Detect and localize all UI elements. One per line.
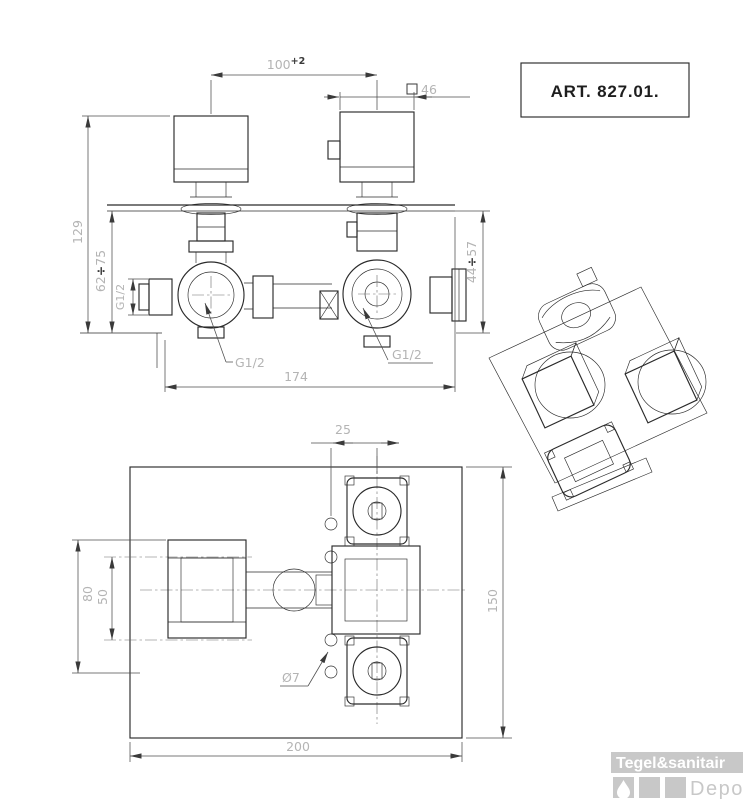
dim-200-label: 200 [286, 739, 310, 754]
perspective-view [489, 266, 707, 511]
dimension-recess-width-200: 200 [130, 739, 462, 762]
outlet-left-label: G1/2 [235, 355, 265, 370]
logo-brand-text: Tegel&sanitair [616, 755, 725, 772]
dim-46-label: 46 [421, 82, 437, 97]
logo-square-3 [665, 777, 686, 798]
union-nut [253, 276, 273, 318]
plan-top-port [345, 476, 409, 546]
iso-left-escutcheon [535, 352, 605, 418]
dim-62-75-label: 62÷75 [93, 250, 108, 292]
dia7-label: Ø7 [282, 670, 300, 685]
outlet-label-left-group: G1/2 [205, 303, 265, 370]
handle-side-knob [328, 141, 340, 159]
iso-right-handle [621, 338, 706, 423]
dim-44-57-label: 44÷57 [464, 241, 479, 283]
dimension-recess-height-150: 150 [466, 467, 512, 738]
dimension-depth-range-left: 62÷75 [93, 211, 112, 333]
dimension-handle-square-46: 46 [324, 82, 470, 110]
logo: Tegel&sanitair Depot [611, 752, 743, 800]
iso-left-handle [518, 343, 603, 428]
logo-square-2 [639, 777, 660, 798]
iso-top-valve [528, 266, 620, 354]
art-number-label: ART. 827.01. [551, 82, 660, 101]
iso-bottom-valve [544, 422, 633, 500]
plan-view: 25 80 50 150 200 Ø7 [72, 422, 512, 762]
front-view: 100+2 46 129 62÷75 G1/2 [70, 56, 490, 392]
outlet-right-label: G1/2 [392, 347, 422, 362]
dim-g12-port-label: G1/2 [114, 284, 127, 310]
dimension-bracket-height-80: 80 [72, 540, 166, 673]
logo-depot-text: Depot [690, 778, 743, 800]
right-outlet-port [430, 277, 452, 313]
technical-drawing: ART. 827.01. [0, 0, 743, 804]
dim-100-label: 100+2 [267, 56, 305, 72]
hole-diameter-label-group: Ø7 [280, 652, 328, 686]
connecting-pipe [244, 276, 332, 318]
iso-wall-plate [489, 287, 707, 483]
dim-25-label: 25 [335, 422, 351, 437]
dimension-depth-range-right: 44÷57 [455, 211, 490, 333]
left-bottom-port [198, 327, 224, 338]
right-valve-body [320, 213, 466, 347]
iso-right-escutcheon [638, 350, 706, 414]
recess-box [130, 467, 462, 738]
dim-129-label: 129 [70, 220, 85, 244]
dimension-body-width-174: 174 [165, 217, 455, 392]
left-handle [174, 116, 248, 215]
dim-150-label: 150 [485, 589, 500, 613]
left-inlet-port [149, 279, 172, 315]
art-number-box: ART. 827.01. [521, 63, 689, 117]
dim-80-label: 80 [80, 586, 95, 602]
dim-50-label: 50 [95, 589, 110, 605]
right-handle [328, 112, 414, 215]
iso-bracket [552, 458, 652, 511]
dimension-hole-spacing-50: 50 [95, 557, 112, 640]
drawing-sheet: ART. 827.01. [0, 0, 743, 804]
dimension-handle-spacing: 100+2 [211, 56, 377, 114]
dim-174-label: 174 [284, 369, 308, 384]
plan-left-handle [168, 540, 246, 638]
square-section-symbol [407, 84, 417, 94]
